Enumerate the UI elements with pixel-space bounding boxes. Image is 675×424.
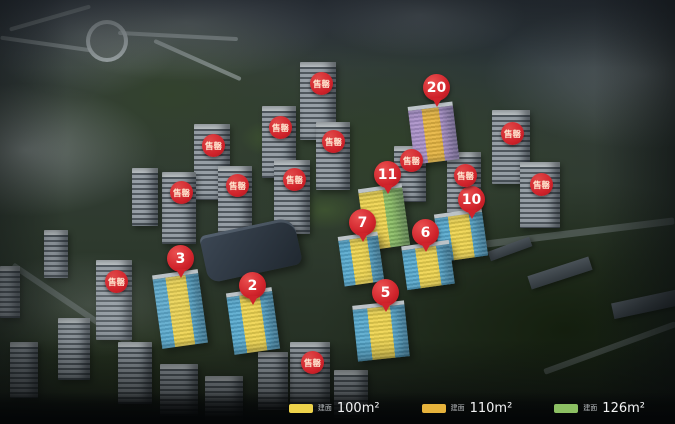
sold-out-badge[interactable]: 售罄 bbox=[301, 351, 324, 374]
sold-out-badge[interactable]: 售罄 bbox=[501, 122, 524, 145]
legend-label-100: 100m² bbox=[337, 402, 380, 415]
sold-out-badge[interactable]: 售罄 bbox=[310, 72, 333, 95]
tower bbox=[58, 318, 90, 380]
legend-item-100: 建面 100m² bbox=[289, 402, 380, 415]
sold-out-badge[interactable]: 售罄 bbox=[322, 130, 345, 153]
legend-item-110: 建面 110m² bbox=[422, 402, 513, 415]
sold-out-badge[interactable]: 售罄 bbox=[202, 134, 225, 157]
legend-swatch-100 bbox=[289, 404, 313, 413]
pin-building-7[interactable]: 7 bbox=[349, 209, 376, 236]
sold-out-badge[interactable]: 售罄 bbox=[400, 149, 423, 172]
pin-building-5[interactable]: 5 bbox=[372, 279, 399, 306]
tower bbox=[0, 266, 20, 318]
sold-out-badge[interactable]: 售罄 bbox=[283, 168, 306, 191]
legend-area-prefix: 建面 bbox=[451, 405, 465, 412]
masterplan-canvas: 20 11 10 7 6 5 3 2 售罄 售罄 售罄 售罄 售罄 售罄 售罄 … bbox=[0, 0, 675, 424]
pin-building-11[interactable]: 11 bbox=[374, 161, 401, 188]
sold-out-badge[interactable]: 售罄 bbox=[105, 270, 128, 293]
pin-building-2[interactable]: 2 bbox=[239, 272, 266, 299]
pin-building-20[interactable]: 20 bbox=[423, 74, 450, 101]
legend-swatch-126 bbox=[554, 404, 578, 413]
sold-out-badge[interactable]: 售罄 bbox=[530, 173, 553, 196]
legend-area-prefix: 建面 bbox=[318, 405, 332, 412]
pin-building-3[interactable]: 3 bbox=[167, 245, 194, 272]
legend-area-prefix: 建面 bbox=[583, 405, 597, 412]
pin-building-6[interactable]: 6 bbox=[412, 219, 439, 246]
tower bbox=[132, 168, 158, 226]
legend-label-126: 126m² bbox=[602, 402, 645, 415]
legend-bar: 建面 100m² 建面 110m² 建面 126m² bbox=[0, 392, 675, 424]
legend-item-126: 建面 126m² bbox=[554, 402, 645, 415]
legend-label-110: 110m² bbox=[470, 402, 513, 415]
sold-out-badge[interactable]: 售罄 bbox=[170, 181, 193, 204]
sold-out-badge[interactable]: 售罄 bbox=[269, 116, 292, 139]
tower bbox=[10, 342, 38, 398]
legend-swatch-110 bbox=[422, 404, 446, 413]
sold-out-badge[interactable]: 售罄 bbox=[226, 174, 249, 197]
pin-building-10[interactable]: 10 bbox=[458, 186, 485, 213]
tower bbox=[44, 230, 68, 278]
sold-out-badge[interactable]: 售罄 bbox=[454, 164, 477, 187]
park-plaza bbox=[86, 20, 128, 62]
